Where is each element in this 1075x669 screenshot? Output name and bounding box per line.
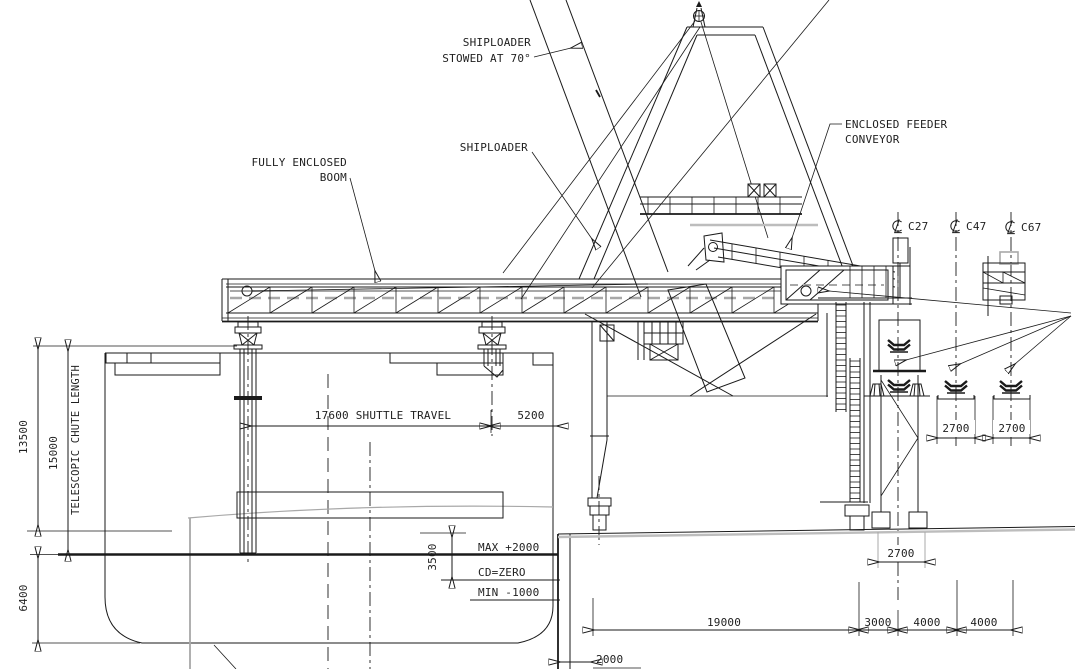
level-cd-zero: CD=ZERO xyxy=(478,566,526,579)
label-c67: C67 xyxy=(1021,221,1041,234)
dim-6400: 6400 xyxy=(17,584,30,611)
dim-telescopic-chute-length: TELESCOPIC CHUTE LENGTH xyxy=(70,365,82,515)
c67-drive-unit xyxy=(983,252,1025,316)
quay-wall xyxy=(558,527,1075,669)
dim-17600-shuttle-travel: 17600 SHUTTLE TRAVEL xyxy=(315,409,452,422)
dim-4000-a: 4000 xyxy=(913,616,940,629)
label-c47: C47 xyxy=(966,220,986,233)
level-max: MAX +2000 xyxy=(478,541,539,554)
ground-idlers xyxy=(864,380,1030,399)
dim-3500: 3500 xyxy=(426,543,439,570)
a-frame-tower xyxy=(579,1,858,279)
labels: SHIPLOADER STOWED AT 70° SHIPLOADER FULL… xyxy=(17,36,1041,666)
centerline-symbol-c47 xyxy=(951,219,960,232)
label-fully-enclosed-boom-1: FULLY ENCLOSED xyxy=(251,156,347,169)
label-c27: C27 xyxy=(908,220,928,233)
dim-2700-c47: 2700 xyxy=(942,422,969,435)
ship-hull xyxy=(105,353,553,669)
dim-2000: 2000 xyxy=(596,653,623,666)
label-shiploader-stowed-2: STOWED AT 70° xyxy=(442,52,531,65)
shiploader-elevation-drawing: SHIPLOADER STOWED AT 70° SHIPLOADER FULL… xyxy=(0,0,1075,669)
portal-front-leg xyxy=(588,321,644,530)
label-fully-enclosed-boom-2: BOOM xyxy=(320,171,347,184)
centerline-symbol-c27 xyxy=(893,219,902,232)
stowed-shiploader-boom xyxy=(530,0,668,297)
drawing-canvas: SHIPLOADER STOWED AT 70° SHIPLOADER FULL… xyxy=(0,0,1075,669)
dim-3000: 3000 xyxy=(864,616,891,629)
centerline-symbol-c67 xyxy=(1006,220,1015,233)
enclosed-boom-truss xyxy=(222,279,818,322)
dim-4000-b: 4000 xyxy=(970,616,997,629)
shuttle-trolley xyxy=(600,322,683,360)
label-shiploader: SHIPLOADER xyxy=(460,141,528,154)
level-min: MIN -1000 xyxy=(478,586,539,599)
label-shiploader-stowed-1: SHIPLOADER xyxy=(463,36,531,49)
dim-15000: 15000 xyxy=(47,436,60,470)
centerlines xyxy=(248,212,1011,669)
dim-19000: 19000 xyxy=(707,616,741,629)
dim-13500: 13500 xyxy=(17,420,30,454)
dim-2700-c67: 2700 xyxy=(998,422,1025,435)
label-enclosed-feeder-1: ENCLOSED FEEDER xyxy=(845,118,948,131)
label-enclosed-feeder-2: CONVEYOR xyxy=(845,133,900,146)
dim-2700-tower-base: 2700 xyxy=(887,547,914,560)
a-frame-walkway xyxy=(640,184,818,225)
dim-5200: 5200 xyxy=(517,409,544,422)
